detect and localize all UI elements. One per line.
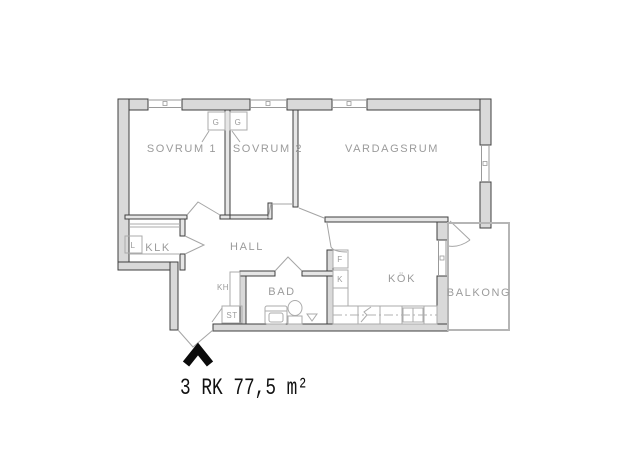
plan-caption: 3 RK 77,5 m²	[180, 375, 308, 401]
room-label-sovrum2: SOVRUM 2	[233, 143, 303, 155]
fixture-label-coat-rack: KH	[217, 283, 229, 292]
kitchen-fixtures	[333, 306, 437, 324]
fixture-label-freezer: F	[337, 255, 342, 264]
room-label-balkong: BALKONG	[447, 287, 511, 299]
entrance-marker-icon	[186, 349, 210, 364]
fixture-label-linen: L	[131, 241, 136, 250]
labels: SOVRUM 1 SOVRUM 2 VARDAGSRUM KLK HALL BA…	[131, 118, 512, 320]
fixture-label-wardrobe-right: G	[235, 118, 242, 127]
windows	[148, 100, 489, 276]
room-label-klk: KLK	[145, 242, 171, 254]
room-label-sovrum1: SOVRUM 1	[147, 143, 217, 155]
bathroom-fixtures	[265, 301, 317, 325]
fixture-label-cleaning: ST	[226, 311, 237, 320]
balcony-outline	[448, 223, 509, 330]
floor-plan: SOVRUM 1 SOVRUM 2 VARDAGSRUM KLK HALL BA…	[0, 0, 625, 460]
room-label-kok: KÖK	[388, 273, 416, 285]
room-label-bad: BAD	[268, 286, 295, 298]
fixture-label-fridge: K	[337, 275, 343, 284]
fixture-label-wardrobe-left: G	[213, 118, 220, 127]
room-label-hall: HALL	[230, 241, 264, 253]
room-label-vardagsrum: VARDAGSRUM	[345, 143, 439, 155]
